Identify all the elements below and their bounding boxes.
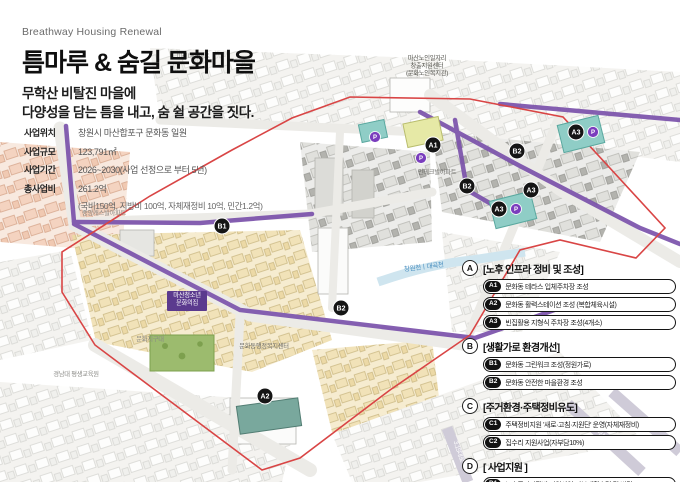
- map-label-text: 문화의집: [176, 298, 198, 307]
- parking-marker: P: [588, 127, 599, 138]
- legend-item-code: C2: [485, 437, 501, 448]
- marker-code: B2: [463, 184, 472, 191]
- map-marker-a2: A2: [257, 388, 273, 404]
- legend-item-text: 문화동 활력스테이션 조성 (복합체육시설): [505, 300, 616, 310]
- info-value: 261.2억: [78, 182, 106, 195]
- marker-code: P: [514, 207, 518, 213]
- info-label: 사업위치: [24, 126, 70, 139]
- map-label: 마산노인일자리창출지원센터(문화노인복지관): [406, 53, 448, 77]
- legend-item-code: B1: [485, 359, 501, 370]
- legend-item-text: 집수리 지원사업(자부담10%): [505, 438, 584, 448]
- legend-section-title: [ 사업지원 ]: [483, 459, 527, 474]
- map-label-text: 마산노인일자리: [408, 53, 446, 62]
- map-label-text: 창출지원센터: [411, 61, 444, 70]
- info-label: 총사업비: [24, 182, 70, 195]
- info-value: 2026~2030(사업 선정으로 부터 5년): [78, 163, 207, 176]
- map-label-text: 문화지구대: [136, 334, 164, 343]
- map-marker-b1: B1: [214, 218, 230, 234]
- info-label: 사업기간: [24, 163, 70, 176]
- legend-item-code: B2: [485, 377, 501, 388]
- project-info-panel: 사업위치창원시 마산합포구 문화동 일원사업규모123,791㎡사업기간2026…: [24, 126, 263, 212]
- marker-code: P: [419, 156, 423, 162]
- legend-panel: A[노후 인프라 정비 및 조성]A1문화동 테라스 입체주차장 조성A2문화동…: [462, 252, 676, 482]
- map-label-text: 문화동행정복지센터: [239, 341, 288, 350]
- parking-marker: P: [370, 132, 381, 143]
- map-marker-a3: A3: [568, 124, 584, 140]
- info-label: 사업규모: [24, 145, 70, 158]
- budget-breakdown-note: (국비150억, 지방비 100억, 자체재정비 10억, 민간1.2억): [78, 200, 263, 212]
- legend-item-a1: A1문화동 테라스 입체주차장 조성: [483, 279, 676, 294]
- legend-item-text: 문화동 테라스 입체주차장 조성: [505, 282, 588, 292]
- legend-item-a2: A2문화동 활력스테이션 조성 (복합체육시설): [483, 297, 676, 312]
- legend-section-c: C[주거환경·주택정비유도]: [462, 398, 676, 414]
- marker-code: B2: [337, 306, 346, 313]
- project-eyebrow: Breathway Housing Renewal: [22, 26, 255, 38]
- marker-code: A3: [572, 130, 581, 137]
- map-marker-a1: A1: [425, 137, 441, 153]
- legend-item-code: A1: [485, 281, 501, 292]
- marker-code: A3: [527, 188, 536, 195]
- info-value: 창원시 마산합포구 문화동 일원: [78, 126, 187, 139]
- marker-code: A3: [495, 207, 504, 214]
- legend-section-b: B[생활가로 환경개선]: [462, 338, 676, 354]
- map-marker-a3: A3: [523, 182, 539, 198]
- legend-item-b1: B1문화동 그린워크 조성(정원가로): [483, 357, 676, 372]
- parking-marker: P: [511, 204, 522, 215]
- legend-section-title: [주거환경·주택정비유도]: [483, 399, 577, 414]
- legend-section-d: D[ 사업지원 ]: [462, 458, 676, 474]
- page-title: 틈마루 & 숨길 문화마을: [22, 43, 255, 79]
- map-label: 마산청소년문화의집: [167, 290, 207, 311]
- marker-code: P: [591, 130, 595, 136]
- legend-letter-badge: B: [462, 338, 478, 354]
- info-row: 사업기간2026~2030(사업 선정으로 부터 5년): [24, 163, 263, 176]
- legend-letter-badge: D: [462, 458, 478, 474]
- legend-item-code: A3: [485, 317, 501, 328]
- subtitle-line-1: 무학산 비탈진 마을에: [22, 85, 255, 104]
- header: Breathway Housing Renewal 틈마루 & 숨길 문화마을 …: [22, 26, 255, 123]
- map-label-text: 인테크빌아파트: [418, 167, 457, 176]
- legend-item-code: C1: [485, 419, 501, 430]
- legend-section-a: A[노후 인프라 정비 및 조성]: [462, 260, 676, 276]
- info-row: 사업위치창원시 마산합포구 문화동 일원: [24, 126, 263, 139]
- legend-letter-badge: A: [462, 260, 478, 276]
- map-label: 문화동행정복지센터: [239, 341, 288, 350]
- map-label-text: 마산청소년: [173, 290, 201, 299]
- marker-code: P: [373, 135, 377, 141]
- legend-letter-badge: C: [462, 398, 478, 414]
- info-row: 총사업비261.2억: [24, 182, 263, 195]
- map-label: 경남대 평생교육원: [53, 369, 99, 378]
- legend-item-text: 문화동 그린워크 조성(정원가로): [505, 360, 590, 370]
- info-row: 사업규모123,791㎡: [24, 145, 263, 158]
- legend-item-text: 주택정비지원 '새로·고침·지원단' 운영(자체재정비): [505, 420, 639, 430]
- marker-code: A2: [261, 394, 270, 401]
- map-label-text: (문화노인복지관): [406, 68, 448, 77]
- map-marker-b2: B2: [509, 143, 525, 159]
- legend-item-c1: C1주택정비지원 '새로·고침·지원단' 운영(자체재정비): [483, 417, 676, 432]
- parking-marker: P: [416, 153, 427, 164]
- legend-section-title: [노후 인프라 정비 및 조성]: [483, 261, 583, 276]
- slide: 미리내아파트마산노인일자리창출지원센터(문화노인복지관)중앙캐스빌아파트인테크빌…: [0, 0, 680, 482]
- legend-item-c2: C2집수리 지원사업(자부담10%): [483, 435, 676, 450]
- legend-section-title: [생활가로 환경개선]: [483, 339, 559, 354]
- info-value: 123,791㎡: [78, 145, 116, 158]
- map-marker-b2: B2: [333, 300, 349, 316]
- map-label-text: 경남대 평생교육원: [53, 369, 99, 378]
- legend-item-text: 문화동 안전한 마을환경 조성: [505, 378, 582, 388]
- marker-code: A1: [429, 143, 438, 150]
- map-marker-a3: A3: [491, 201, 507, 217]
- map-marker-b2: B2: [459, 178, 475, 194]
- legend-item-a3: A3빈집활용 지형식 주차장 조성(4개소): [483, 315, 676, 330]
- subtitle-line-2: 다양성을 담는 틈을 내고, 숨 쉴 공간을 짓다.: [22, 104, 255, 123]
- marker-code: B2: [513, 149, 522, 156]
- marker-code: B1: [218, 224, 227, 231]
- legend-item-b2: B2문화동 안전한 마을환경 조성: [483, 375, 676, 390]
- legend-item-text: 빈집활용 지형식 주차장 조성(4개소): [505, 318, 602, 328]
- map-label: 인테크빌아파트: [418, 167, 457, 176]
- legend-item-d1: D1노후주거지정비 지원사업 기본계획수립 및 변경: [483, 477, 676, 482]
- map-label: 문화지구대: [136, 334, 164, 343]
- legend-item-code: A2: [485, 299, 501, 310]
